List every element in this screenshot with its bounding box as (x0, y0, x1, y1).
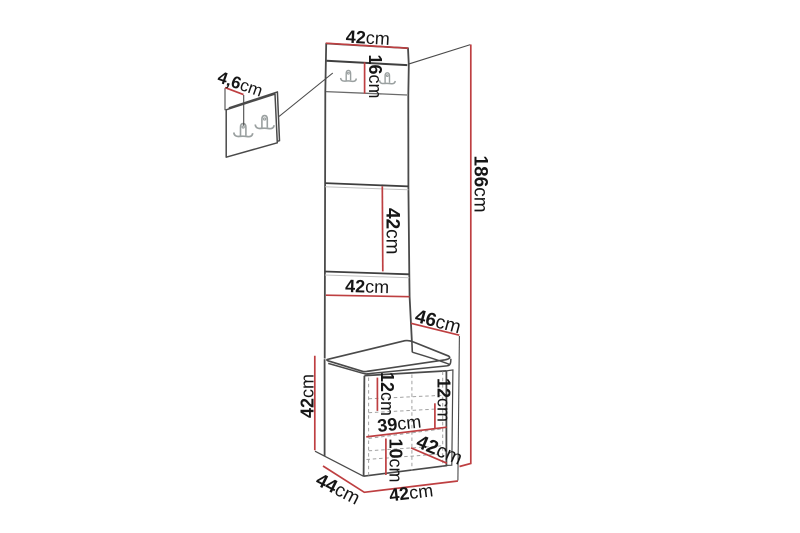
svg-text:12cm: 12cm (377, 372, 397, 416)
svg-text:10cm: 10cm (386, 439, 406, 483)
svg-text:42cm: 42cm (345, 276, 390, 297)
svg-text:12cm: 12cm (434, 378, 454, 422)
svg-text:42cm: 42cm (345, 27, 390, 50)
svg-text:42cm: 42cm (298, 374, 318, 418)
svg-text:42cm: 42cm (381, 208, 402, 254)
svg-text:186cm: 186cm (470, 156, 491, 213)
svg-text:16cm: 16cm (365, 55, 385, 99)
